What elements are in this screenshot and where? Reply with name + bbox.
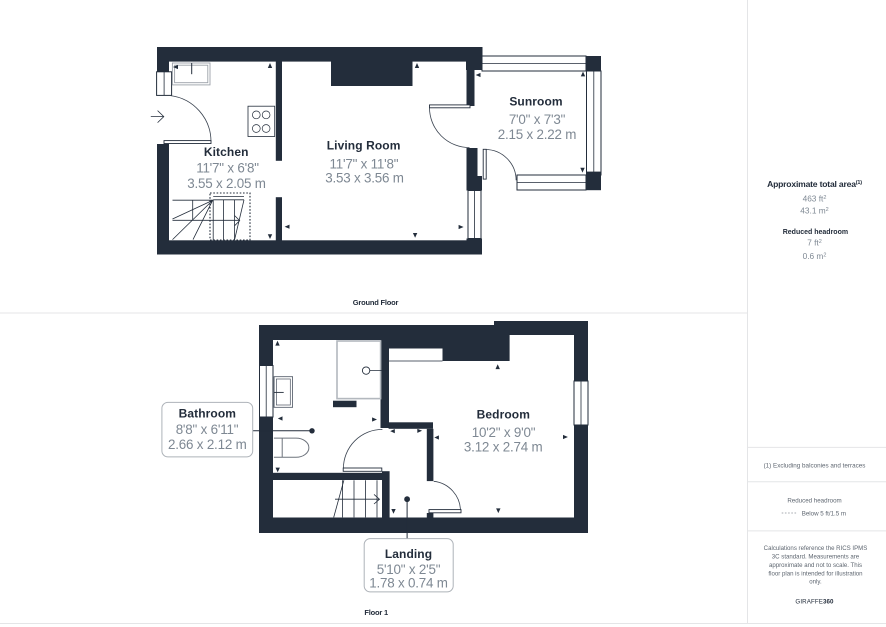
svg-text:Bathroom: Bathroom <box>179 406 236 420</box>
svg-text:7 ft2: 7 ft2 <box>807 238 822 248</box>
svg-text:3.53 x 3.56 m: 3.53 x 3.56 m <box>325 171 404 186</box>
svg-text:7'0" x 7'3": 7'0" x 7'3" <box>509 112 566 127</box>
svg-text:2.15 x 2.22 m: 2.15 x 2.22 m <box>498 127 577 142</box>
svg-text:Calculations reference the RIC: Calculations reference the RICS IPMS <box>764 545 868 552</box>
svg-text:0.6 m2: 0.6 m2 <box>803 251 827 261</box>
svg-text:Sunroom: Sunroom <box>509 94 562 108</box>
svg-text:463 ft2: 463 ft2 <box>803 194 827 204</box>
svg-text:Reduced headroom: Reduced headroom <box>783 229 848 236</box>
svg-text:Landing: Landing <box>385 547 432 561</box>
svg-text:2.66 x 2.12 m: 2.66 x 2.12 m <box>168 437 247 452</box>
svg-text:43.1 m2: 43.1 m2 <box>800 205 828 215</box>
svg-text:3.12 x 2.74 m: 3.12 x 2.74 m <box>464 440 543 455</box>
svg-text:Below 5 ft/1.5 m: Below 5 ft/1.5 m <box>802 510 846 517</box>
svg-text:(1) Excluding balconies and te: (1) Excluding balconies and terraces <box>764 462 866 469</box>
svg-text:only.: only. <box>809 579 822 586</box>
svg-text:floor plan is intended for ill: floor plan is intended for illustration <box>768 570 862 577</box>
svg-text:1.78 x 0.74 m: 1.78 x 0.74 m <box>369 575 448 590</box>
svg-text:Approximate total area(1): Approximate total area(1) <box>767 179 862 189</box>
svg-text:GIRAFFE360: GIRAFFE360 <box>795 598 834 605</box>
svg-text:Kitchen: Kitchen <box>204 145 249 159</box>
svg-text:approximate and not to scale.: approximate and not to scale. This <box>769 562 862 569</box>
svg-text:10'2" x 9'0": 10'2" x 9'0" <box>472 425 536 440</box>
svg-text:8'8" x 6'11": 8'8" x 6'11" <box>176 422 239 437</box>
svg-text:Bedroom: Bedroom <box>477 408 530 422</box>
svg-text:Reduced headroom: Reduced headroom <box>787 498 841 505</box>
svg-text:3C standard. Measurements are: 3C standard. Measurements are <box>772 554 860 561</box>
svg-text:Ground Floor: Ground Floor <box>353 298 399 307</box>
svg-text:3.55 x 2.05 m: 3.55 x 2.05 m <box>187 176 266 191</box>
svg-text:Living Room: Living Room <box>327 139 401 153</box>
svg-text:11'7" x 11'8": 11'7" x 11'8" <box>329 157 398 172</box>
svg-text:11'7" x 6'8": 11'7" x 6'8" <box>196 160 259 175</box>
svg-text:Floor 1: Floor 1 <box>364 608 388 617</box>
